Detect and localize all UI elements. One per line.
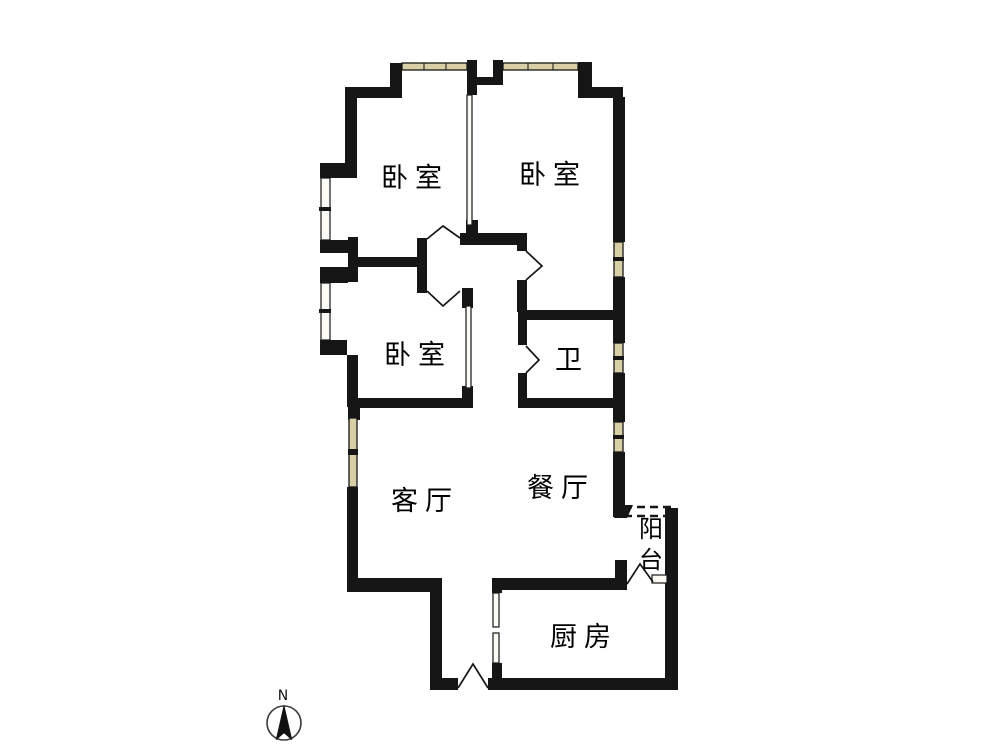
- wall-segment: [348, 398, 360, 420]
- label-living-room: 客厅: [391, 486, 459, 516]
- door-bedroom-top-right: [526, 251, 542, 280]
- wall-segment: [502, 578, 627, 590]
- wall-segment: [348, 237, 358, 282]
- wall-segment: [345, 87, 357, 163]
- floor-plan-canvas: 卧室 卧室 卧室 卫 客厅 餐厅 厨房 阳 台 N: [0, 0, 1000, 750]
- door-bedroom-top-left: [427, 226, 460, 239]
- label-bathroom: 卫: [555, 345, 589, 375]
- wall-segment: [347, 487, 358, 582]
- wall-segment: [518, 310, 617, 320]
- window-mullion: [613, 356, 624, 360]
- door-bathroom: [526, 346, 539, 373]
- window-top-left-bedroom: [402, 63, 467, 70]
- wall-segment: [518, 320, 527, 345]
- label-balcony-char-1: 阳: [639, 517, 663, 543]
- wall-segment: [578, 62, 592, 98]
- wall-segment: [430, 678, 458, 690]
- wall-segment: [467, 60, 477, 95]
- wall-segment: [517, 235, 527, 251]
- window-balcony: [652, 575, 667, 583]
- wall-segment: [477, 77, 493, 85]
- window-mullion: [319, 309, 331, 313]
- partition-bedroom3-corridor: [466, 306, 471, 388]
- compass-north-label: N: [278, 688, 288, 704]
- wall-segment: [320, 163, 357, 178]
- wall-segment: [320, 267, 348, 283]
- label-balcony-char-2: 台: [639, 547, 663, 574]
- wall-segment: [517, 280, 527, 312]
- wall-segment: [492, 578, 502, 593]
- wall-segment: [430, 592, 442, 678]
- window-mullion: [613, 435, 624, 439]
- partition-bedroom1-bedroom2: [467, 95, 472, 225]
- label-bedroom-top-right: 卧室: [519, 160, 587, 190]
- wall-segment: [613, 373, 625, 422]
- wall-segment: [488, 678, 678, 690]
- label-bedroom-middle: 卧室: [384, 340, 452, 370]
- wall-segment: [665, 508, 678, 690]
- wall-segment: [358, 257, 418, 267]
- door-entry: [458, 664, 488, 688]
- compass: N: [267, 688, 301, 740]
- window-mullion: [348, 449, 358, 455]
- door-bedroom-middle: [427, 291, 460, 306]
- wall-segment: [462, 288, 473, 308]
- wall-segment: [355, 398, 473, 408]
- label-dining-room: 餐厅: [527, 473, 595, 503]
- wall-segment: [615, 560, 627, 582]
- kitchen-partition-lower: [493, 633, 499, 663]
- wall-segment: [592, 87, 623, 98]
- compass-needle-icon: [276, 705, 292, 740]
- wall-segment: [518, 398, 617, 408]
- wall-segment: [417, 238, 427, 293]
- kitchen-partition-upper: [493, 593, 499, 627]
- label-bedroom-top-left: 卧室: [381, 163, 449, 193]
- label-kitchen: 厨房: [550, 622, 618, 652]
- wall-segment: [347, 578, 442, 592]
- window-top-right-bedroom: [503, 63, 578, 70]
- wall-segment: [613, 97, 625, 242]
- floor-plan-svg: 卧室 卧室 卧室 卫 客厅 餐厅 厨房 阳 台 N: [0, 0, 1000, 750]
- wall-segment: [493, 60, 503, 85]
- window-mullion: [613, 257, 624, 261]
- window-mullion: [319, 207, 331, 211]
- wall-segment: [492, 663, 502, 678]
- wall-segment: [320, 340, 347, 355]
